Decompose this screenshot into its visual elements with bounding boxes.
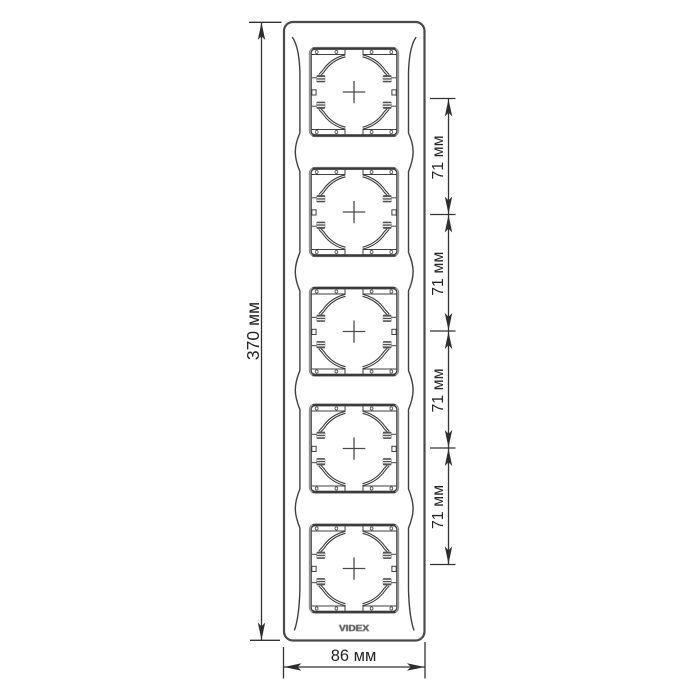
svg-text:VIDEX: VIDEX	[339, 624, 370, 633]
svg-text:71 мм: 71 мм	[430, 252, 447, 296]
svg-text:71 мм: 71 мм	[430, 368, 447, 412]
svg-text:86 мм: 86 мм	[331, 647, 377, 665]
svg-text:370 мм: 370 мм	[243, 302, 263, 360]
svg-text:71 мм: 71 мм	[430, 485, 447, 529]
svg-text:71 мм: 71 мм	[430, 135, 447, 179]
